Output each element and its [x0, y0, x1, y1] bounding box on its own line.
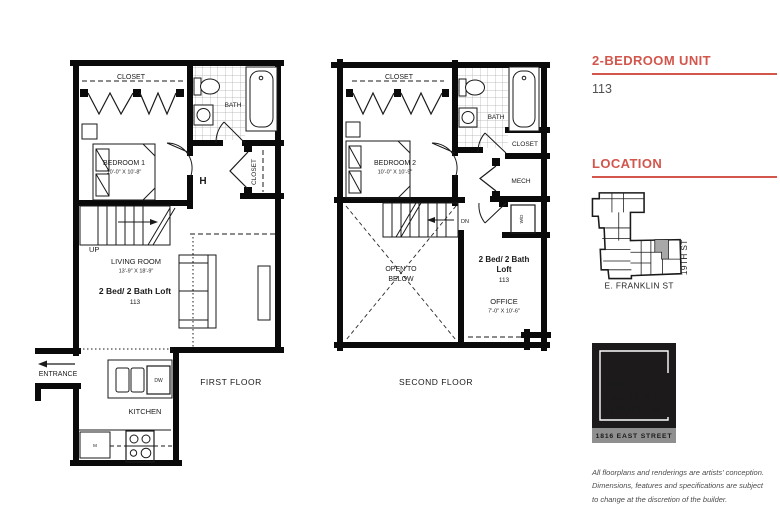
sf-toilet [459, 79, 485, 96]
location-map: 19TH ST E. FRANKLIN ST [588, 188, 780, 300]
sf-label-open-below-2: BELOW [388, 276, 414, 283]
sf-label-office-dim: 7'-0" X 10'-6" [488, 309, 520, 315]
entrance-arrow [38, 361, 75, 368]
floorplan-sheet: CLOSET BATH CLOSET BEDROOM 1 10'-0" X 10… [0, 0, 780, 517]
ff-toilet [194, 78, 220, 95]
ff-label-bath: BATH [225, 102, 242, 109]
disclaimer-line2: Dimensions, features and specifications … [592, 479, 780, 492]
sf-label-wd: W/D [519, 214, 524, 223]
sf-label-office: OFFICE [490, 297, 518, 306]
sf-label-open-below-1: OPEN TO [385, 266, 417, 273]
sf-label-bedroom2-dim: 10'-0" X 10'-9" [378, 170, 413, 176]
ff-console [258, 266, 270, 320]
ff-label-closet-top: CLOSET [117, 74, 146, 81]
ff-label-h: H [199, 176, 206, 187]
first-floor-caption: FIRST FLOOR [200, 377, 262, 387]
ff-label-unit-type: 2 Bed/ 2 Bath Loft [99, 286, 171, 296]
sf-mech-door [480, 158, 500, 199]
logo-line3: FRANKLIN [605, 405, 662, 416]
ff-tub [246, 67, 277, 131]
sf-label-mech: MECH [511, 178, 530, 185]
second-floor-plan: CLOSET BATH CLOSET MECH BEDROOM 2 10'-0"… [334, 62, 548, 387]
ff-label-dw: DW [154, 378, 163, 384]
ff-label-entrance: ENTRANCE [39, 371, 78, 378]
sf-label-dn: DN [461, 219, 469, 225]
map-street-bottom: E. FRANKLIN ST [605, 281, 674, 290]
ff-label-bedroom1-dim: 10'-0" X 10'-8" [107, 170, 142, 176]
ff-stairs [80, 206, 175, 245]
ff-label-living-dim: 13'-9" X 18'-9" [119, 269, 154, 275]
logo-address: 1816 EAST STREET [596, 433, 673, 440]
ff-label-m: M [93, 443, 97, 448]
sf-stairs [383, 203, 458, 237]
ff-label-unit-number: 113 [130, 299, 141, 306]
unit-number: 113 [592, 82, 612, 96]
sf-label-bedroom2: BEDROOM 2 [374, 160, 416, 167]
sf-label-closet-top: CLOSET [385, 74, 414, 81]
ff-label-closet-side: CLOSET [251, 159, 258, 185]
disclaimer-line3: to change at the discretion of the build… [592, 493, 780, 506]
sf-sink [459, 108, 477, 127]
logo-line1: THE [605, 379, 627, 390]
logo-line2: LOFTS AT [605, 392, 658, 403]
unit-heading: 2-BEDROOM UNIT [592, 53, 777, 75]
ff-label-up: UP [89, 245, 99, 254]
ff-label-kitchen: KITCHEN [129, 407, 162, 416]
disclaimer: All floorplans and renderings are artist… [592, 466, 780, 506]
ff-label-bedroom1: BEDROOM 1 [103, 160, 145, 167]
sf-label-unit-type-2: Loft [496, 265, 511, 274]
map-street-side: 19TH ST [680, 239, 689, 275]
map-building-outline [592, 193, 681, 279]
disclaimer-line1: All floorplans and renderings are artist… [592, 466, 780, 479]
second-floor-caption: SECOND FLOOR [399, 377, 473, 387]
location-heading: LOCATION [592, 156, 777, 178]
sf-closet-doors [346, 81, 449, 114]
sf-label-unit-number: 113 [499, 277, 510, 284]
lofts-logo: THE LOFTS AT FRANKLIN 1816 EAST STREET [592, 343, 676, 443]
sf-label-closet-side: CLOSET [512, 141, 538, 148]
ff-side-closet [230, 145, 263, 194]
ff-stove [126, 431, 154, 462]
ff-label-living: LIVING ROOM [111, 257, 161, 266]
sf-wd-door [479, 199, 508, 223]
ff-sink [194, 105, 213, 125]
ff-sofa [179, 255, 216, 328]
ff-closet-doors [80, 81, 184, 114]
sf-label-unit-type-1: 2 Bed/ 2 Bath [479, 255, 530, 264]
sf-label-bath: BATH [488, 114, 505, 121]
sf-tub [509, 67, 539, 131]
first-floor-plan: CLOSET BATH CLOSET BEDROOM 1 10'-0" X 10… [38, 63, 281, 463]
